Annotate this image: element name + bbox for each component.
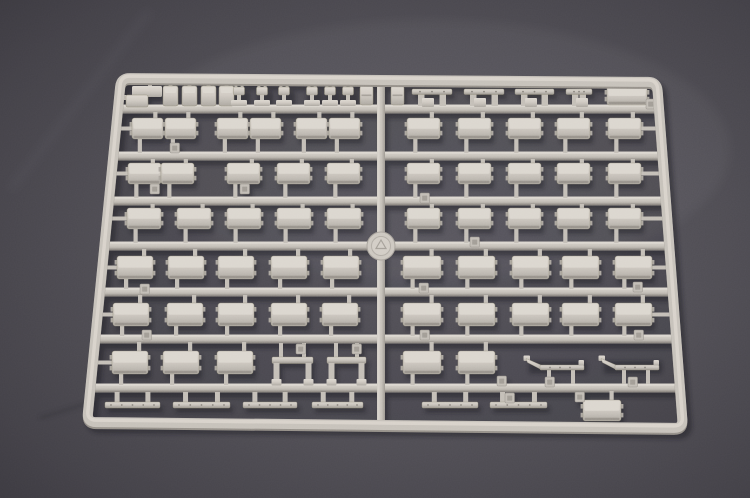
sprue-photo — [0, 0, 750, 498]
sprue-photo-svg — [0, 0, 750, 498]
film-grain — [0, 0, 750, 498]
